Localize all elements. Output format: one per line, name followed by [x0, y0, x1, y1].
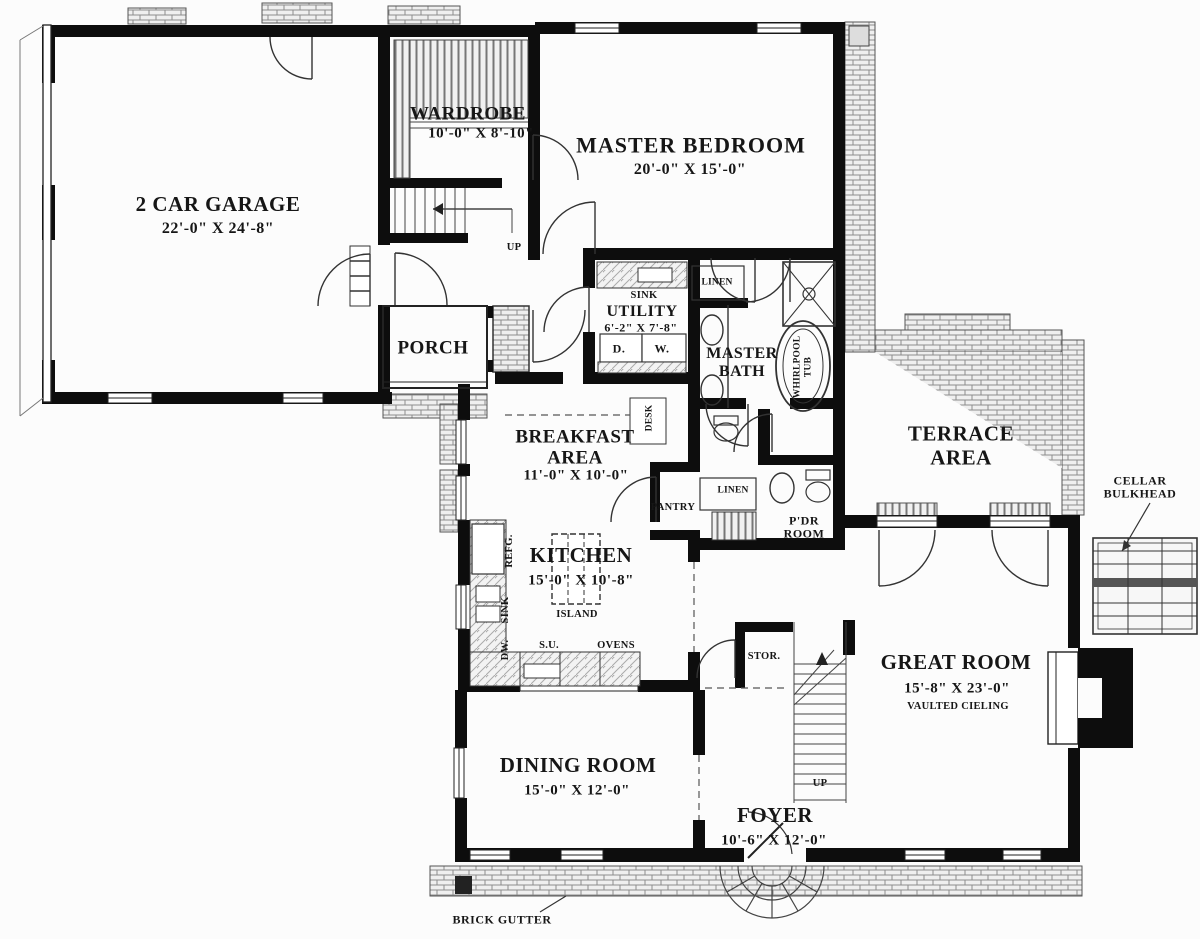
kitchen-label: KITCHEN: [530, 544, 633, 568]
master-bedroom-dims: 20'-0" X 15'-0": [634, 161, 746, 179]
dryer-label: D.: [613, 342, 626, 355]
dining-room-label: DINING ROOM: [500, 754, 657, 778]
main-stairs: [794, 622, 846, 803]
linen-hall-label: LINEN: [717, 486, 748, 497]
linen-bath-label: LINEN: [701, 278, 732, 289]
whirlpool-tub-label: WHIRLPOOL TUB: [792, 336, 813, 399]
foyer-label: FOYER: [737, 804, 813, 828]
island-label: ISLAND: [556, 609, 597, 621]
wardrobe-dims: 10'-0" X 8'-10": [428, 126, 534, 143]
cellar-bulkhead-label: CELLAR BULKHEAD: [1104, 475, 1177, 502]
washer-label: W.: [655, 342, 670, 355]
cellar-bulkhead: [1093, 503, 1197, 634]
garage-west-wall: [20, 25, 51, 416]
desk-label: DESK: [645, 405, 656, 432]
powder-room-label: P'DR ROOM: [784, 515, 825, 542]
ovens-label: OVENS: [597, 640, 635, 652]
pantry-label: PANTRY: [651, 502, 695, 514]
brick-gutter-leader: [540, 896, 566, 912]
floor-plan: 2 CAR GARAGE 22'-0" X 24'-8" WARDROBE 10…: [0, 0, 1200, 939]
great-room-dims: 15'-8" X 23'-0": [904, 681, 1010, 698]
breakfast-label: BREAKFAST AREA: [515, 427, 634, 470]
dining-room-dims: 15'-0" X 12'-0": [524, 783, 630, 800]
brick-gutter-label: BRICK GUTTER: [452, 913, 551, 926]
breakfast-dims: 11'-0" X 10'-0": [524, 468, 629, 485]
utility-dims: 6'-2" X 7'-8": [604, 321, 677, 334]
dishwasher-label: DW.: [500, 640, 512, 661]
garage-label: 2 CAR GARAGE: [136, 193, 301, 217]
back-stairs: [395, 188, 512, 233]
kitchen-sink-label: SINK: [500, 597, 512, 624]
wardrobe-label: WARDROBE: [410, 103, 526, 124]
utility-sink-label: SINK: [631, 290, 658, 302]
serving-unit-label: S.U.: [539, 640, 559, 652]
great-room-label: GREAT ROOM: [881, 651, 1032, 675]
storage-label: STOR.: [748, 651, 781, 663]
kitchen-dims: 15'-0" X 10'-8": [528, 573, 634, 590]
front-steps: [720, 812, 824, 918]
fireplace: [1048, 648, 1133, 748]
utility-label: UTILITY: [606, 303, 677, 321]
terrace-label: TERRACE AREA: [908, 422, 1014, 469]
porch-label: PORCH: [397, 337, 468, 358]
garage-dims: 22'-0" X 24'-8": [162, 220, 274, 238]
great-room-note: VAULTED CIELING: [907, 701, 1009, 713]
foyer-dims: 10'-6" X 12'-0": [721, 833, 827, 850]
refrigerator-label: REFG.: [504, 534, 516, 567]
master-bath-label: MASTER BATH: [706, 345, 777, 381]
up-main-stairs-label: UP: [813, 778, 828, 790]
master-bedroom-label: MASTER BEDROOM: [576, 134, 806, 159]
up-back-stairs-label: UP: [507, 242, 522, 254]
